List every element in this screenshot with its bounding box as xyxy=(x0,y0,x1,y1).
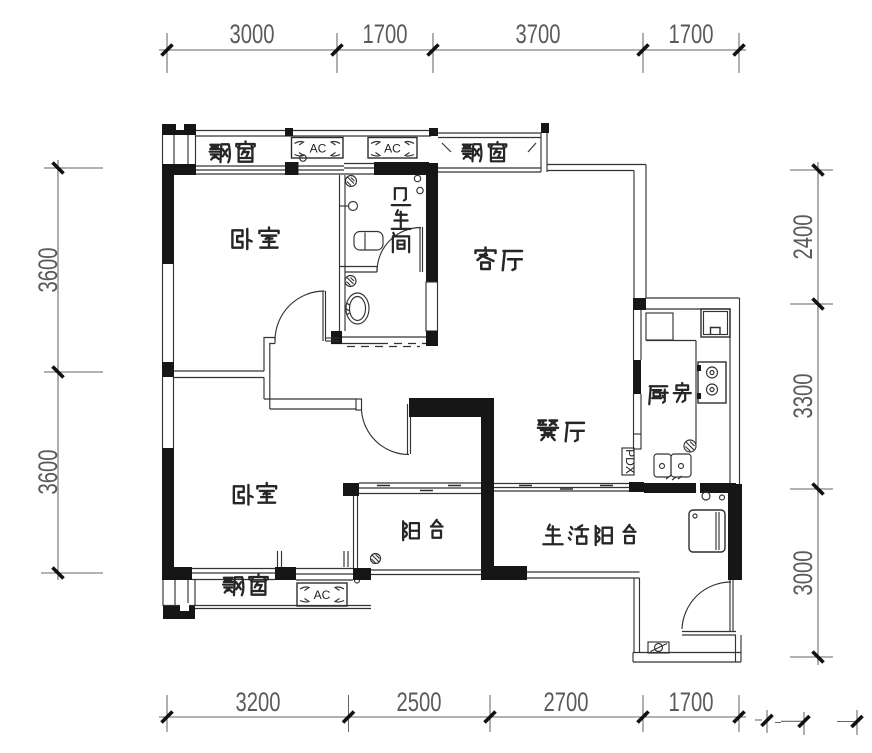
svg-text:3700: 3700 xyxy=(516,19,561,49)
svg-text:2500: 2500 xyxy=(397,687,442,717)
svg-text:AC: AC xyxy=(310,142,327,156)
svg-text:3000: 3000 xyxy=(230,19,275,49)
svg-text:PDX: PDX xyxy=(623,449,637,474)
svg-text:AC: AC xyxy=(384,142,401,156)
svg-text:3600: 3600 xyxy=(33,248,63,293)
svg-text:3600: 3600 xyxy=(33,450,63,495)
svg-text:1700: 1700 xyxy=(669,19,714,49)
svg-text:3000: 3000 xyxy=(788,551,818,596)
svg-text:3300: 3300 xyxy=(788,374,818,419)
svg-text:2400: 2400 xyxy=(788,215,818,260)
svg-text:3200: 3200 xyxy=(236,687,281,717)
svg-text:2700: 2700 xyxy=(544,687,589,717)
svg-text:1700: 1700 xyxy=(363,19,408,49)
svg-text:AC: AC xyxy=(314,588,331,602)
svg-text:1700: 1700 xyxy=(669,687,714,717)
